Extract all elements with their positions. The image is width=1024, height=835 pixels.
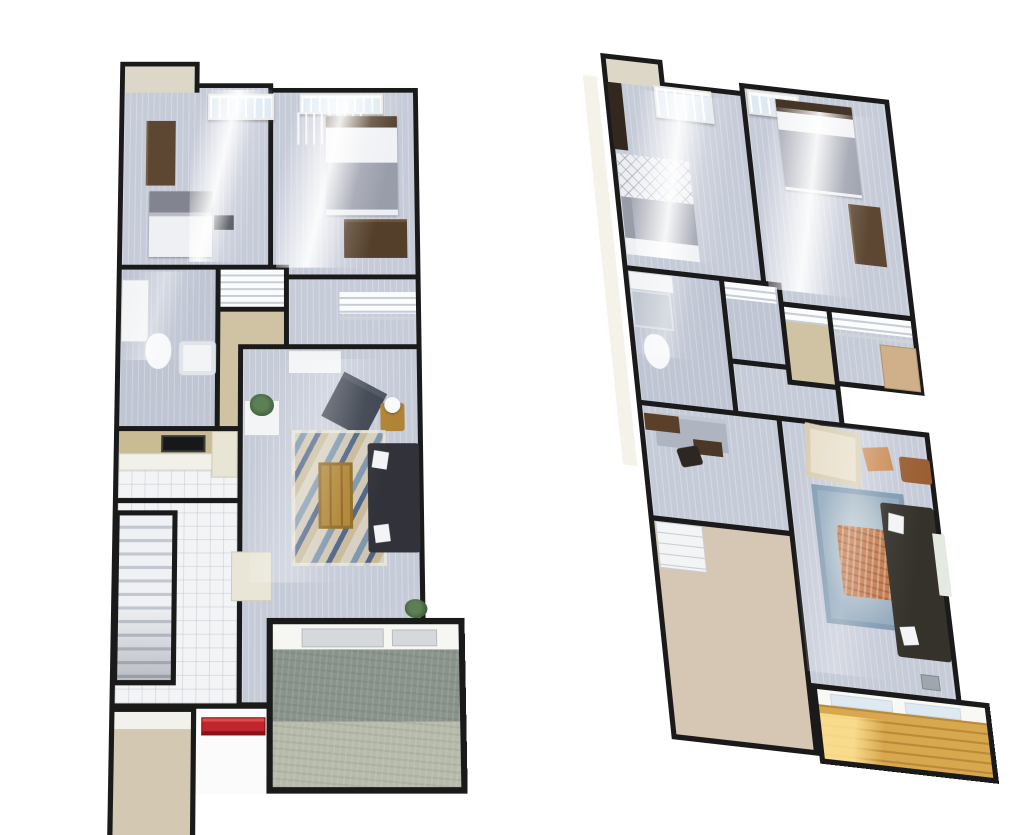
drawer-chest xyxy=(655,521,707,573)
potted-plant xyxy=(250,394,274,416)
stove xyxy=(161,435,205,452)
nightstand xyxy=(214,215,234,229)
patio-bench xyxy=(302,628,384,647)
potted-plant xyxy=(405,599,428,618)
window-bay xyxy=(299,94,383,115)
lamp xyxy=(384,397,400,413)
lounge-chair xyxy=(231,551,272,601)
room-balcony xyxy=(811,683,999,784)
patio-bench xyxy=(392,629,437,646)
bed xyxy=(149,191,213,257)
bed xyxy=(326,116,398,215)
closet-shelves xyxy=(339,292,416,314)
shower-tile xyxy=(630,289,675,331)
sofa xyxy=(368,443,421,552)
room-alcove xyxy=(120,62,200,93)
closet-rod xyxy=(340,317,417,320)
sunlight-patch xyxy=(820,713,919,769)
red-door-mat xyxy=(201,717,265,735)
window-bay xyxy=(653,85,715,124)
desk xyxy=(344,219,407,258)
floor-plan-left xyxy=(91,56,469,835)
coffee-table xyxy=(318,462,353,528)
floor-vent xyxy=(920,674,940,691)
patio-stone-light xyxy=(273,722,462,788)
room-garage xyxy=(107,707,196,835)
hall-shelf xyxy=(288,350,342,374)
side-table-with-lamp xyxy=(380,403,404,431)
bed xyxy=(775,99,862,199)
accent-pillow xyxy=(862,447,894,471)
tall-cabinet xyxy=(211,431,237,478)
bath-vanity xyxy=(121,279,150,342)
closet-bench xyxy=(879,344,921,392)
window-bay xyxy=(208,94,274,120)
room-linen-closet xyxy=(215,265,289,312)
staircase xyxy=(112,510,178,685)
kitchen-counter xyxy=(118,453,219,470)
bathtub xyxy=(178,340,216,376)
room-patio xyxy=(266,618,467,794)
floor-plan-right xyxy=(592,50,983,782)
side-table xyxy=(899,456,933,485)
floor-plan-stage xyxy=(0,0,1024,835)
dresser xyxy=(146,121,176,186)
